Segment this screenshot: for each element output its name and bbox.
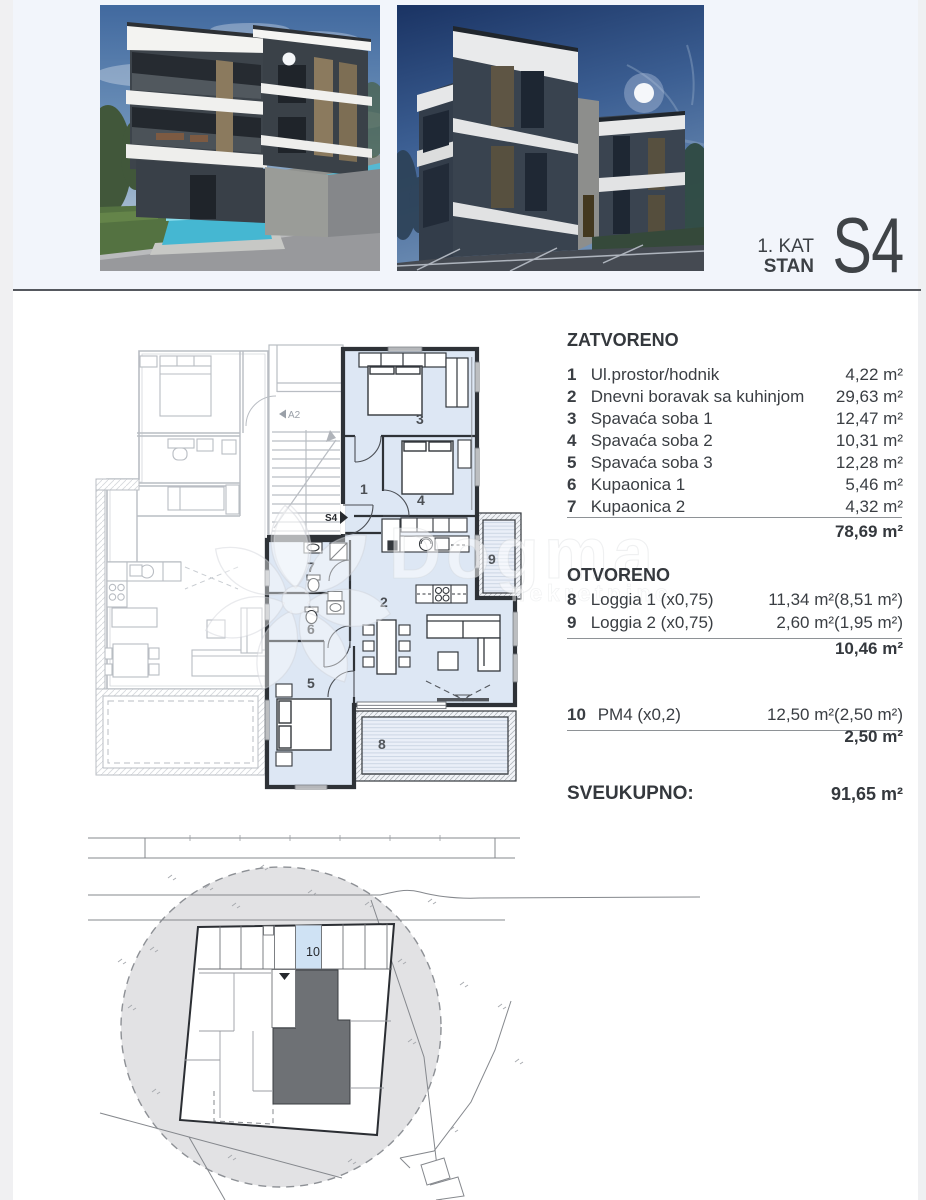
svg-text:10: 10 bbox=[306, 945, 320, 959]
